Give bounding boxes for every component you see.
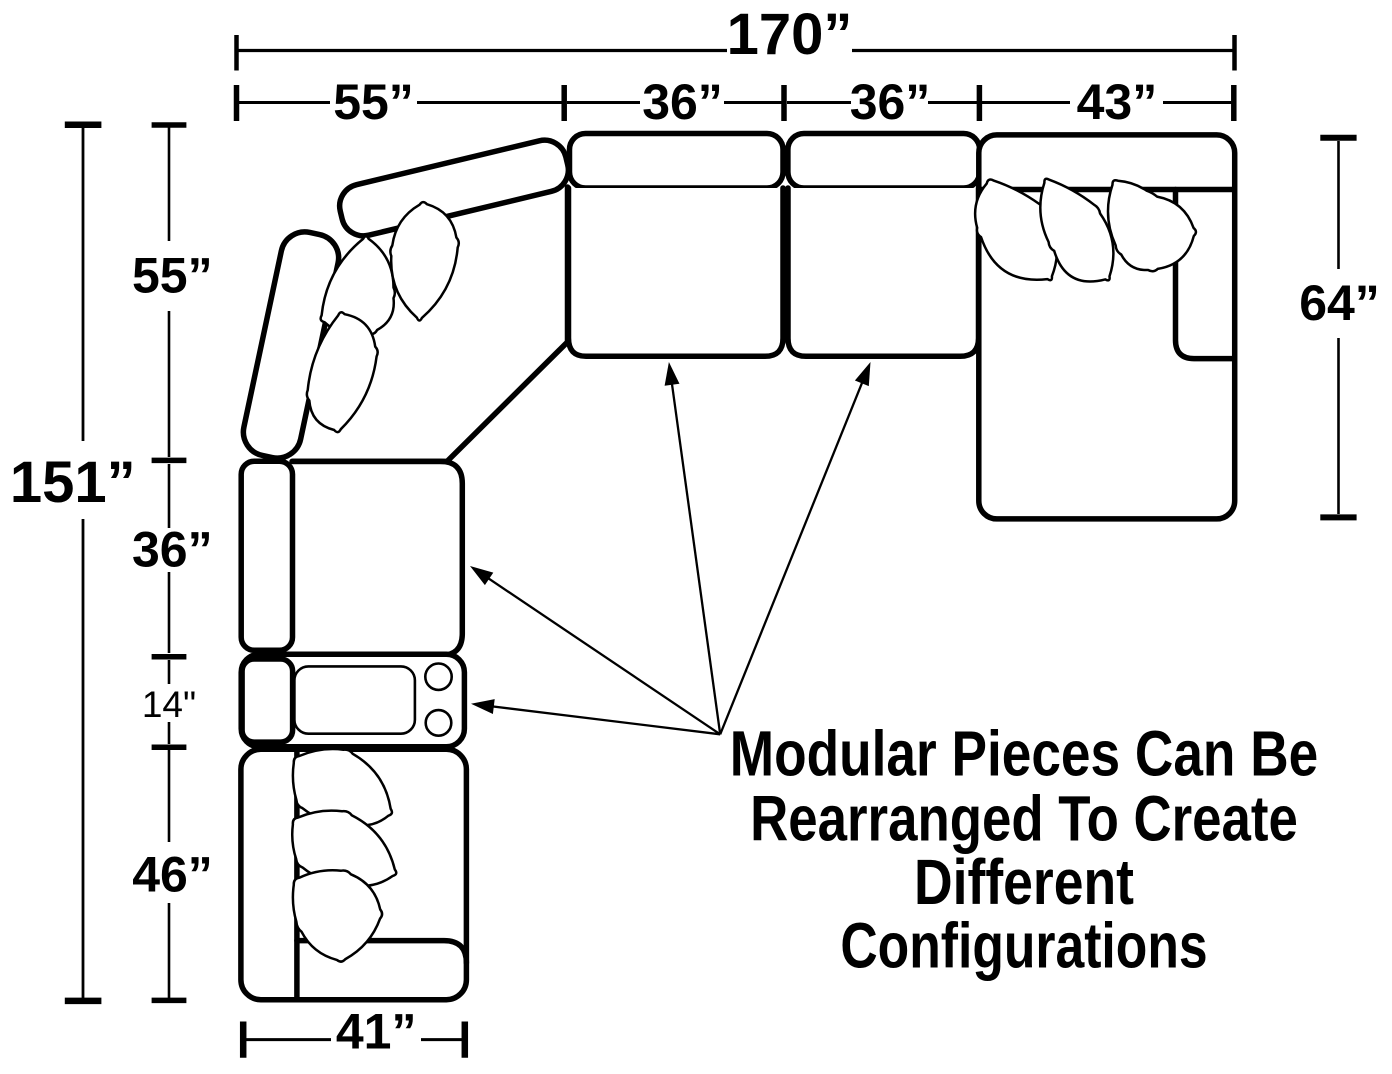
svg-text:46”: 46” <box>132 847 213 903</box>
svg-text:36”: 36” <box>642 74 723 130</box>
svg-text:Rearranged To Create: Rearranged To Create <box>750 782 1298 854</box>
svg-text:170”: 170” <box>727 2 853 67</box>
svg-text:Configurations: Configurations <box>840 910 1207 982</box>
svg-text:43”: 43” <box>1077 74 1158 130</box>
svg-text:55”: 55” <box>132 248 213 304</box>
svg-text:64”: 64” <box>1299 275 1380 331</box>
svg-text:14": 14" <box>142 684 196 725</box>
svg-text:36”: 36” <box>132 522 213 578</box>
svg-text:Different: Different <box>914 846 1134 918</box>
svg-text:36”: 36” <box>850 74 931 130</box>
svg-text:151”: 151” <box>10 450 136 515</box>
svg-text:41”: 41” <box>336 1004 417 1060</box>
svg-text:Modular Pieces Can Be: Modular Pieces Can Be <box>730 718 1319 790</box>
svg-text:55”: 55” <box>333 74 414 130</box>
